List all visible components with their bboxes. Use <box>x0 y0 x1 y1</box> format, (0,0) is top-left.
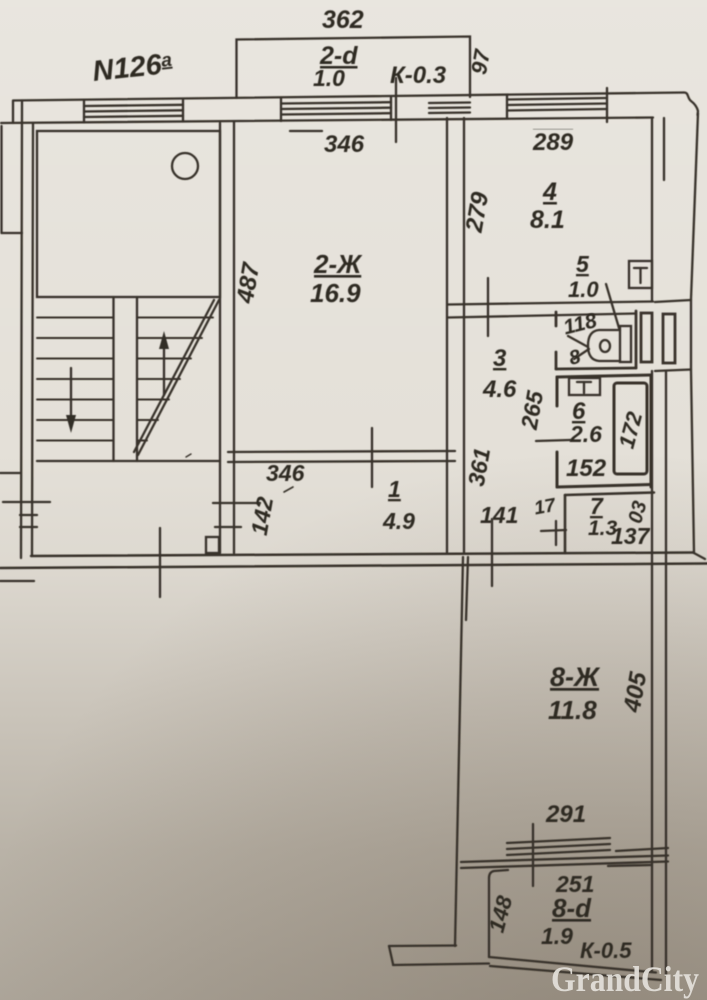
svg-text:03: 03 <box>624 499 651 526</box>
svg-text:265: 265 <box>516 388 549 432</box>
svg-text:172: 172 <box>614 408 648 451</box>
svg-text:2-Ж: 2-Ж <box>313 249 363 279</box>
svg-text:279: 279 <box>461 189 495 235</box>
svg-text:4: 4 <box>542 178 557 206</box>
svg-text:4.9: 4.9 <box>382 508 415 534</box>
svg-text:346: 346 <box>324 131 365 158</box>
svg-text:152: 152 <box>566 455 607 482</box>
svg-text:7: 7 <box>590 493 604 519</box>
svg-text:17: 17 <box>533 495 559 520</box>
svg-text:1.0: 1.0 <box>313 65 345 91</box>
svg-text:2.6: 2.6 <box>569 421 602 447</box>
svg-text:289: 289 <box>532 129 574 156</box>
svg-text:362: 362 <box>322 6 364 34</box>
svg-text:GrandCity: GrandCity <box>551 959 699 999</box>
svg-text:118: 118 <box>561 309 599 339</box>
svg-text:N126a: N126a <box>91 48 174 88</box>
svg-text:291: 291 <box>545 801 586 828</box>
svg-text:4.6: 4.6 <box>482 376 517 403</box>
svg-text:361: 361 <box>463 446 495 488</box>
svg-text:5: 5 <box>576 251 590 277</box>
svg-text:346: 346 <box>266 460 305 486</box>
svg-text:405: 405 <box>619 669 653 715</box>
svg-text:3: 3 <box>493 345 507 372</box>
svg-text:142: 142 <box>246 495 278 538</box>
svg-text:8-d: 8-d <box>552 893 592 923</box>
svg-text:1.0: 1.0 <box>568 277 599 302</box>
svg-text:487: 487 <box>232 259 266 306</box>
svg-text:97: 97 <box>466 46 495 76</box>
svg-text:141: 141 <box>480 502 518 528</box>
svg-text:16.9: 16.9 <box>310 278 361 308</box>
svg-text:11.8: 11.8 <box>548 695 597 725</box>
svg-text:8-Ж: 8-Ж <box>550 662 601 692</box>
svg-text:1: 1 <box>388 476 401 502</box>
svg-text:8.1: 8.1 <box>530 206 565 234</box>
svg-text:1.9: 1.9 <box>541 923 573 949</box>
svg-text:137: 137 <box>611 523 651 549</box>
svg-text:8: 8 <box>567 346 584 370</box>
svg-text:К-0.3: К-0.3 <box>390 62 447 89</box>
